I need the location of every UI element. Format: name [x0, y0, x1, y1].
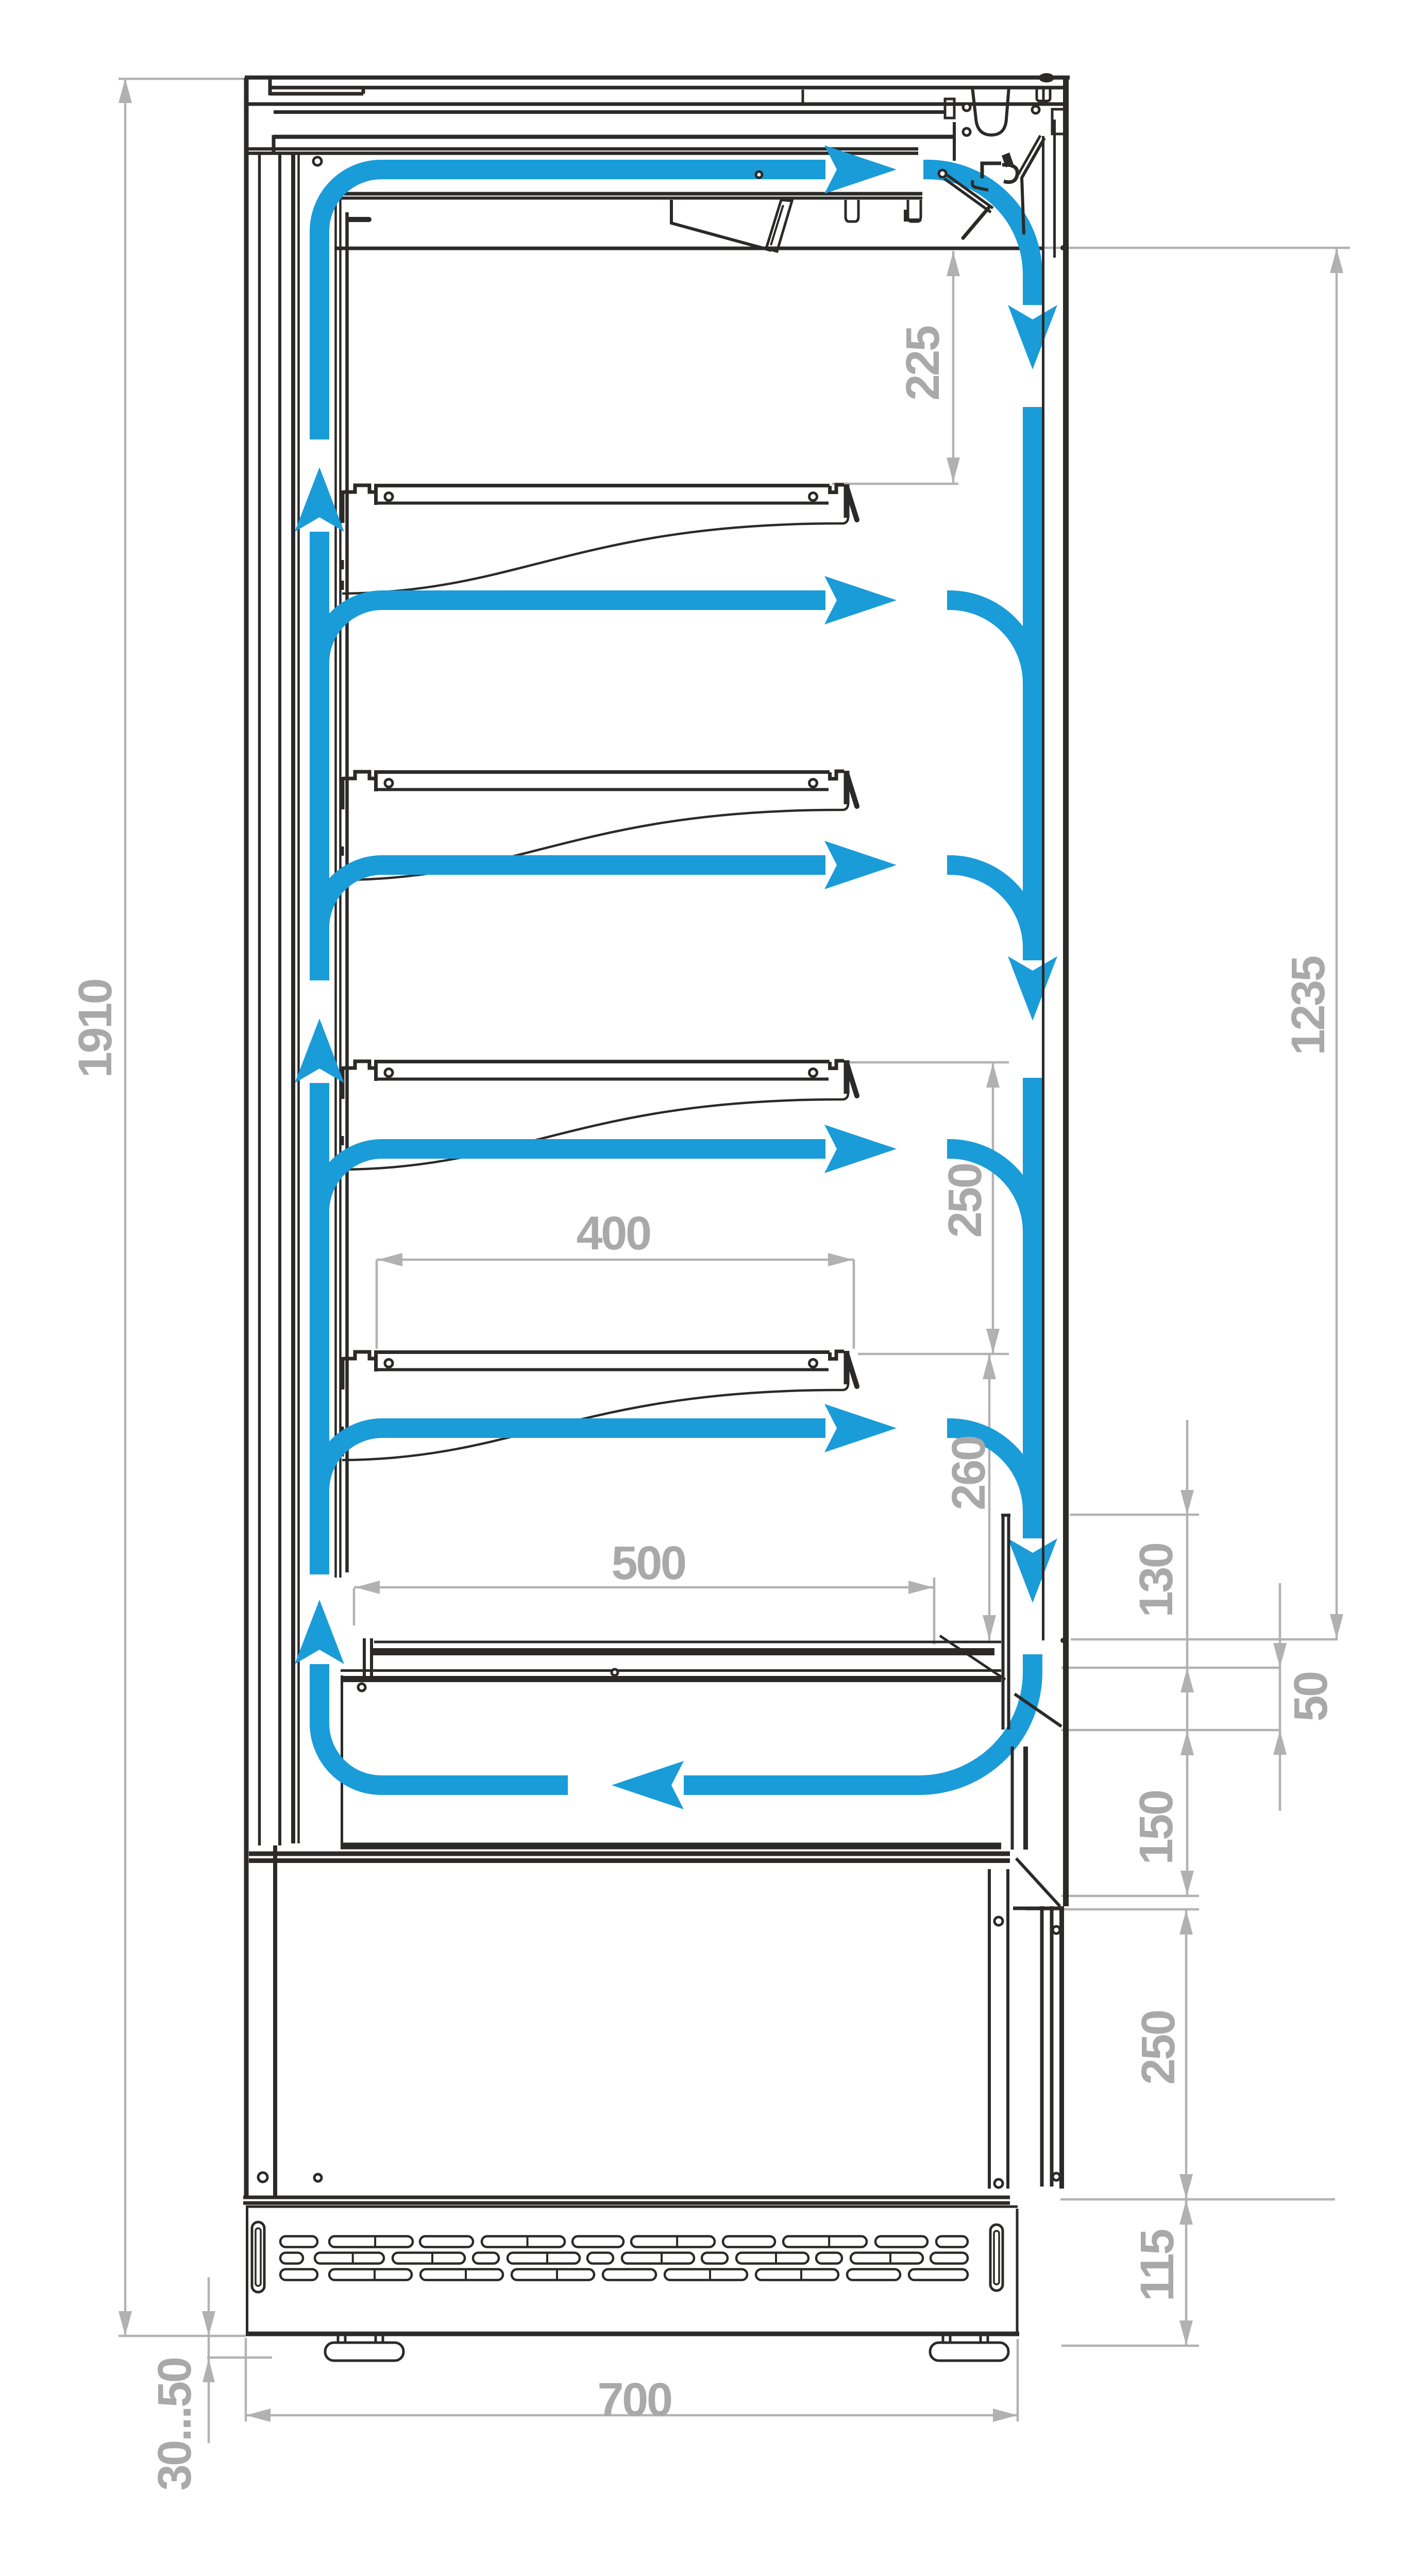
svg-text:30...50: 30...50	[148, 2358, 201, 2490]
svg-text:250: 250	[939, 1164, 991, 1238]
svg-text:1235: 1235	[1282, 956, 1335, 1055]
svg-text:1910: 1910	[69, 979, 122, 1078]
svg-text:150: 150	[1130, 1791, 1183, 1865]
svg-text:260: 260	[942, 1436, 995, 1510]
svg-text:130: 130	[1130, 1544, 1183, 1617]
svg-text:500: 500	[612, 1537, 685, 1589]
svg-text:225: 225	[897, 326, 949, 400]
svg-text:250: 250	[1132, 2011, 1185, 2084]
svg-text:400: 400	[577, 1207, 650, 1260]
svg-text:115: 115	[1131, 2230, 1184, 2301]
svg-text:50: 50	[1285, 1672, 1337, 1722]
svg-text:700: 700	[598, 2374, 671, 2426]
